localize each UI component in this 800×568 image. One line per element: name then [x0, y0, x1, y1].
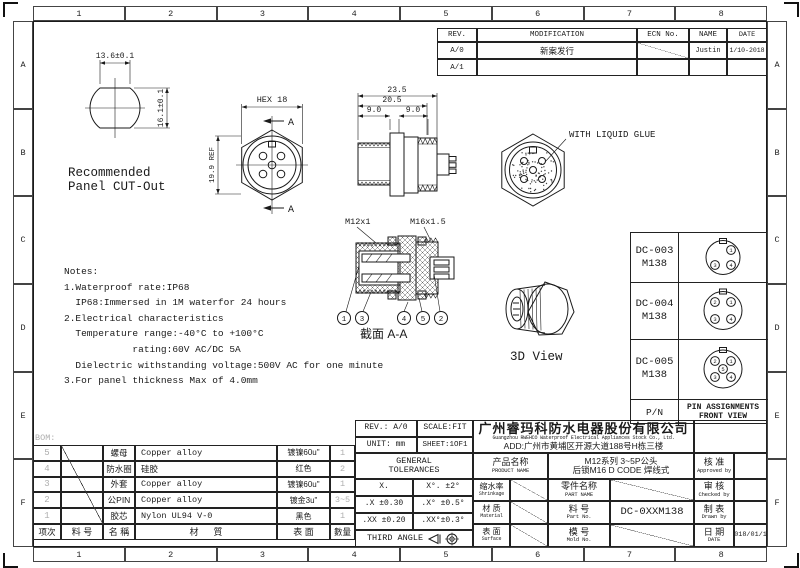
- tb-mold-no-label: 模 号 Mold No.: [548, 524, 610, 547]
- shrinkage-en: Shrinkage: [479, 492, 504, 498]
- panel-cutout-caption-line2: Panel CUT-Out: [68, 180, 166, 194]
- tb-surface-label: 表 面 Surface: [473, 524, 510, 547]
- tb-date-value: 2018/01/10: [734, 524, 767, 547]
- tb-approved-label: 核 准 Approved by: [694, 453, 734, 479]
- bom-material: Copper alloy: [135, 492, 277, 508]
- bom-qty: 1: [330, 445, 355, 461]
- tb-drawn-value: [734, 501, 767, 524]
- third-angle-label: THIRD ANGLE: [367, 534, 423, 543]
- pin-row-label: DC-003 M138: [631, 233, 678, 282]
- tb-empty-cell: [694, 420, 767, 453]
- drawn-en: Drawn by: [702, 514, 727, 520]
- tb-sheet: SHEET:1OF1: [417, 437, 473, 453]
- tb-part-name-label: 零件名称 PART NAME: [548, 479, 610, 501]
- pin-number: 5: [721, 366, 724, 373]
- name-header: NAME: [689, 28, 727, 42]
- tb-tol-r1c1: X.: [355, 479, 413, 496]
- bom-header-name: 名 稱: [103, 524, 135, 540]
- dim-right-thread: 9.0: [406, 106, 421, 115]
- bom-row-no: 3: [33, 477, 61, 493]
- model: M138: [642, 311, 667, 324]
- rev-value: A/1: [437, 59, 477, 76]
- tb-checked-label: 审 核 Checked by: [694, 479, 734, 501]
- tb-unit: UNIT: mm: [355, 437, 417, 453]
- bom-qty: 2: [330, 461, 355, 477]
- bom-material: Copper alloy: [135, 477, 277, 493]
- third-angle-projection-icon: [427, 532, 461, 546]
- modification-header: MODIFICATION: [477, 28, 637, 42]
- note-line: 3.For panel thickness Max of 4.0mm: [64, 373, 409, 389]
- tb-mold-no-value: [610, 524, 694, 547]
- pin-row-label: DC-005 M138: [631, 339, 678, 399]
- tb-date-label: 日 期 DATE: [694, 524, 734, 547]
- revision-table: REV. MODIFICATION ECN No. NAME DATE A/0 …: [437, 28, 767, 76]
- tb-tol-r1c2: X°. ±2°: [413, 479, 473, 496]
- tb-general-tolerances: GENERAL TOLERANCES: [355, 453, 473, 479]
- company-name-cn: 广州睿玛科防水电器股份有限公司: [478, 422, 688, 436]
- bom-header-surface: 表 面: [277, 524, 330, 540]
- pin-assignments-title: PIN ASSIGNMENTS: [687, 403, 759, 412]
- bom-row-no: 5: [33, 445, 61, 461]
- dim-left-thread: 9.0: [367, 106, 382, 115]
- bom-material: Nylon UL94 V-0: [135, 508, 277, 524]
- part-number: DC-004: [636, 298, 674, 311]
- thread-label-m16: M16x1.5: [410, 217, 446, 227]
- bom-name: 防水圈: [103, 461, 135, 477]
- pin-number: 4: [729, 316, 733, 323]
- tb-tol-r3c1: .XX ±0.20: [355, 513, 413, 530]
- part-name-en: PART NAME: [565, 492, 593, 498]
- pin-number: 2: [713, 358, 716, 365]
- bom-row-no: 4: [33, 461, 61, 477]
- note-line: Notes:: [64, 264, 409, 280]
- pin-diagram-dc004: 2 1 3 4: [678, 282, 768, 339]
- tb-tol-r2c2: .X° ±0.5°: [413, 496, 473, 513]
- date-en: DATE: [708, 537, 720, 543]
- side-view: 23.5 20.5 9.0 9.0: [358, 86, 456, 196]
- tb-product-name-label: 产品名称 PRODUCT NAME: [473, 453, 548, 479]
- tb-third-angle: THIRD ANGLE: [355, 530, 473, 547]
- part-no-en: Part No.: [567, 514, 592, 520]
- note-line: IP68:Immersed in 1M waterfor 24 hours: [64, 295, 409, 311]
- tb-approved-value: [734, 453, 767, 479]
- pin-number: 1: [729, 299, 733, 306]
- bom-header-no: 项次: [33, 524, 61, 540]
- bom-header-part-no: 料 号: [61, 524, 103, 540]
- bom-name: 外套: [103, 477, 135, 493]
- part-number: DC-003: [636, 245, 674, 258]
- pin-number: 3: [713, 374, 716, 381]
- tb-surface-value: [510, 524, 548, 547]
- surface-en: Surface: [482, 537, 502, 543]
- bom-empty-diagonal: [61, 445, 103, 524]
- bom-surface: 镀镍60u": [277, 477, 330, 493]
- section-arrow-a-top: A: [288, 118, 294, 129]
- pin-diagram-dc005: 2 1 5 3 4: [678, 339, 768, 399]
- checked-en: Checked by: [698, 492, 729, 498]
- pin-number: 4: [729, 374, 733, 381]
- model: M138: [642, 258, 667, 271]
- tb-company: 广州睿玛科防水电器股份有限公司 Guangzhou RWEHCO Waterpr…: [473, 420, 694, 453]
- modification-value: [477, 59, 637, 76]
- dim-ref: 19.9 REF: [209, 147, 217, 183]
- company-address: ADD:广州市黄埔区开源大道188号H栋三楼: [504, 442, 664, 451]
- bom-header-material: 材 質: [135, 524, 277, 540]
- dim-panel-width: 13.6±0.1: [96, 52, 135, 61]
- name-value: [689, 59, 727, 76]
- engineering-drawing-sheet: 1 2 3 4 5 6 7 8 1 2 3 4 5 6 7 8 A B C D …: [0, 0, 800, 568]
- view-3d-caption: 3D View: [510, 350, 563, 364]
- view-3d: 3D View: [506, 282, 574, 364]
- part-number: DC-005: [636, 356, 674, 369]
- name-value: Justin: [689, 42, 727, 59]
- bom-name: 螺母: [103, 445, 135, 461]
- mold-no-en: Mold No.: [567, 537, 592, 543]
- bom-qty: 1: [330, 508, 355, 524]
- product-name-en: PRODUCT NAME: [492, 468, 529, 474]
- bom-header-qty: 數量: [330, 524, 355, 540]
- tb-tol-r3c2: .XX°±0.3°: [413, 513, 473, 530]
- bom-surface: 黑色: [277, 508, 330, 524]
- bom-row-no: 1: [33, 508, 61, 524]
- note-line: rating:60V AC/DC 5A: [64, 342, 409, 358]
- pin-diagram-dc003: 1 3 4: [678, 233, 768, 282]
- tb-shrinkage-label: 缩水率 Shrinkage: [473, 479, 510, 501]
- tb-part-name-value: [610, 479, 694, 501]
- balloon-2: 2: [439, 316, 444, 324]
- bom-name: 胶芯: [103, 508, 135, 524]
- date-value: 1/10-2018: [727, 42, 767, 59]
- glue-label: WITH LIQUID GLUE: [569, 130, 655, 140]
- dim-total-length: 23.5: [387, 86, 406, 95]
- tb-part-no-label: 料 号 Part No.: [548, 501, 610, 524]
- tb-scale: SCALE:FIT: [417, 420, 473, 437]
- glue-view: WITH LIQUID GLUE: [502, 130, 656, 206]
- note-line: 1.Waterproof rate:IP68: [64, 280, 409, 296]
- glue-stipple: [512, 152, 554, 192]
- ecn-value: [637, 42, 689, 59]
- approved-en: Approved by: [697, 468, 731, 474]
- bom-name: 公PIN: [103, 492, 135, 508]
- pin-assignment-table: DC-003 M138 1 3 4 DC-004 M138 2 1 3: [630, 232, 767, 424]
- dim-panel-height: 16.1±0.1: [157, 89, 166, 128]
- panel-cutout-caption-line1: Recommended: [68, 166, 151, 180]
- pin-number: 3: [713, 316, 716, 323]
- tb-rev: REV.: A/0: [355, 420, 417, 437]
- bom-qty: 3~5: [330, 492, 355, 508]
- pin-row-label: DC-004 M138: [631, 282, 678, 339]
- ecn-header: ECN No.: [637, 28, 689, 42]
- note-line: Temperature range:-40°C to +100°C: [64, 326, 409, 342]
- ecn-value: [637, 59, 689, 76]
- model: M138: [642, 369, 667, 382]
- front-view: HEX 18 A A 19.9 REF: [209, 95, 308, 216]
- rev-header: REV.: [437, 28, 477, 42]
- bom-surface: 镀金3u": [277, 492, 330, 508]
- bom-row-no: 2: [33, 492, 61, 508]
- bom-material: 硅胶: [135, 461, 277, 477]
- tb-material-value: [510, 501, 548, 524]
- pin-number: 1: [729, 247, 733, 254]
- tb-checked-value: [734, 479, 767, 501]
- material-en: Material: [480, 514, 502, 520]
- section-arrow-a-bottom: A: [288, 205, 294, 216]
- pin-number: 3: [713, 262, 716, 269]
- notes-block: Notes: 1.Waterproof rate:IP68 IP68:Immer…: [64, 264, 409, 389]
- date-header: DATE: [727, 28, 767, 42]
- date-value: [727, 59, 767, 76]
- note-line: 2.Electrical characteristics: [64, 311, 409, 327]
- dim-mid-length: 20.5: [382, 96, 401, 105]
- note-line: Dielectric withstanding voltage:500V AC …: [64, 358, 409, 374]
- tb-part-no-value: DC-0XXM138: [610, 501, 694, 524]
- product-value-line2: 后锁M16 D CODE 焊线式: [573, 466, 670, 475]
- tolerances-header-line2: TOLERANCES: [388, 466, 439, 475]
- panel-cutout-view: 13.6±0.1 16.1±0.1 Recommended Panel CUT-…: [68, 52, 170, 194]
- tb-tol-r2c1: .X ±0.30: [355, 496, 413, 513]
- tb-drawn-label: 制 表 Drawn by: [694, 501, 734, 524]
- rev-value: A/0: [437, 42, 477, 59]
- balloon-5: 5: [421, 316, 426, 324]
- bom-surface: 镀镍60u": [277, 445, 330, 461]
- tb-product-name-value: M12系列 3~5P公头 后锁M16 D CODE 焊线式: [548, 453, 694, 479]
- tb-shrinkage-value: [510, 479, 548, 501]
- pin-number: 2: [713, 299, 716, 306]
- pin-number: 1: [729, 358, 733, 365]
- thread-label-m12: M12x1: [345, 217, 371, 227]
- dim-hex: HEX 18: [257, 95, 288, 105]
- tb-material-label: 材 质 Material: [473, 501, 510, 524]
- bom-label: BOM:: [35, 433, 55, 443]
- modification-value: 新案发行: [477, 42, 637, 59]
- bom-qty: 1: [330, 477, 355, 493]
- bom-surface: 红色: [277, 461, 330, 477]
- bom-material: Copper alloy: [135, 445, 277, 461]
- pin-number: 4: [729, 262, 733, 269]
